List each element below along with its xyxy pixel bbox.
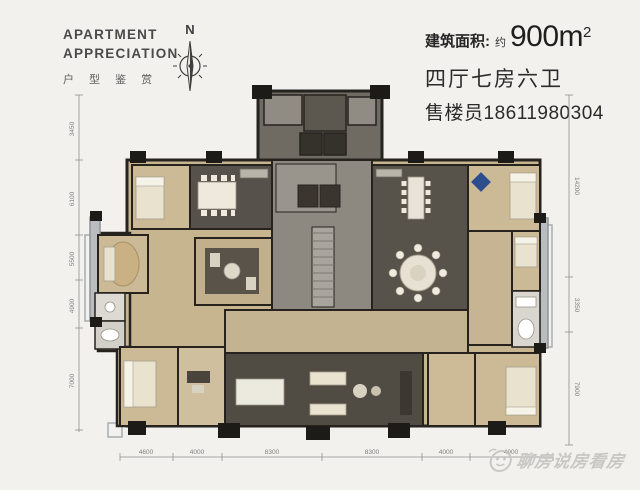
dim-right-3: 7900 [573, 382, 580, 397]
brand-title-line2: APPRECIATION [63, 45, 178, 64]
area-label: 建筑面积: [425, 30, 490, 51]
floorplan-svg: 3450 6100 5500 4900 7000 14200 3350 7900… [60, 85, 590, 480]
dim-left-5: 7000 [69, 373, 76, 388]
compass-north-label: N [168, 22, 212, 37]
dim-left-4: 4900 [69, 298, 76, 313]
watermark: 聊房说房看房 [484, 444, 627, 474]
dim-bottom-4: 8300 [365, 449, 380, 456]
watermark-face-icon [484, 444, 516, 474]
brand-title-line1: APARTMENT [63, 26, 178, 45]
watermark-text: 聊房说房看房 [515, 447, 627, 472]
dim-right-1: 14200 [573, 177, 580, 195]
dim-left-2: 6100 [69, 191, 76, 206]
dim-left-3: 5500 [69, 251, 76, 266]
brand-block: APARTMENT APPRECIATION 户 型 鉴 赏 [63, 26, 178, 87]
floorplan-page: APARTMENT APPRECIATION 户 型 鉴 赏 N [0, 0, 640, 490]
dim-right-2: 3350 [573, 298, 580, 313]
dim-left-1: 3450 [69, 121, 76, 136]
area-row: 建筑面积: 约 900m 2 [425, 20, 637, 54]
dim-bottom-2: 4000 [190, 449, 205, 456]
area-value: 900m [510, 20, 583, 54]
area-approx: 约 [495, 34, 506, 50]
dim-bottom-1: 4600 [139, 449, 154, 456]
dim-bottom-5: 4000 [439, 449, 454, 456]
dim-bottom-3: 8300 [265, 449, 280, 456]
area-exponent: 2 [583, 24, 591, 41]
